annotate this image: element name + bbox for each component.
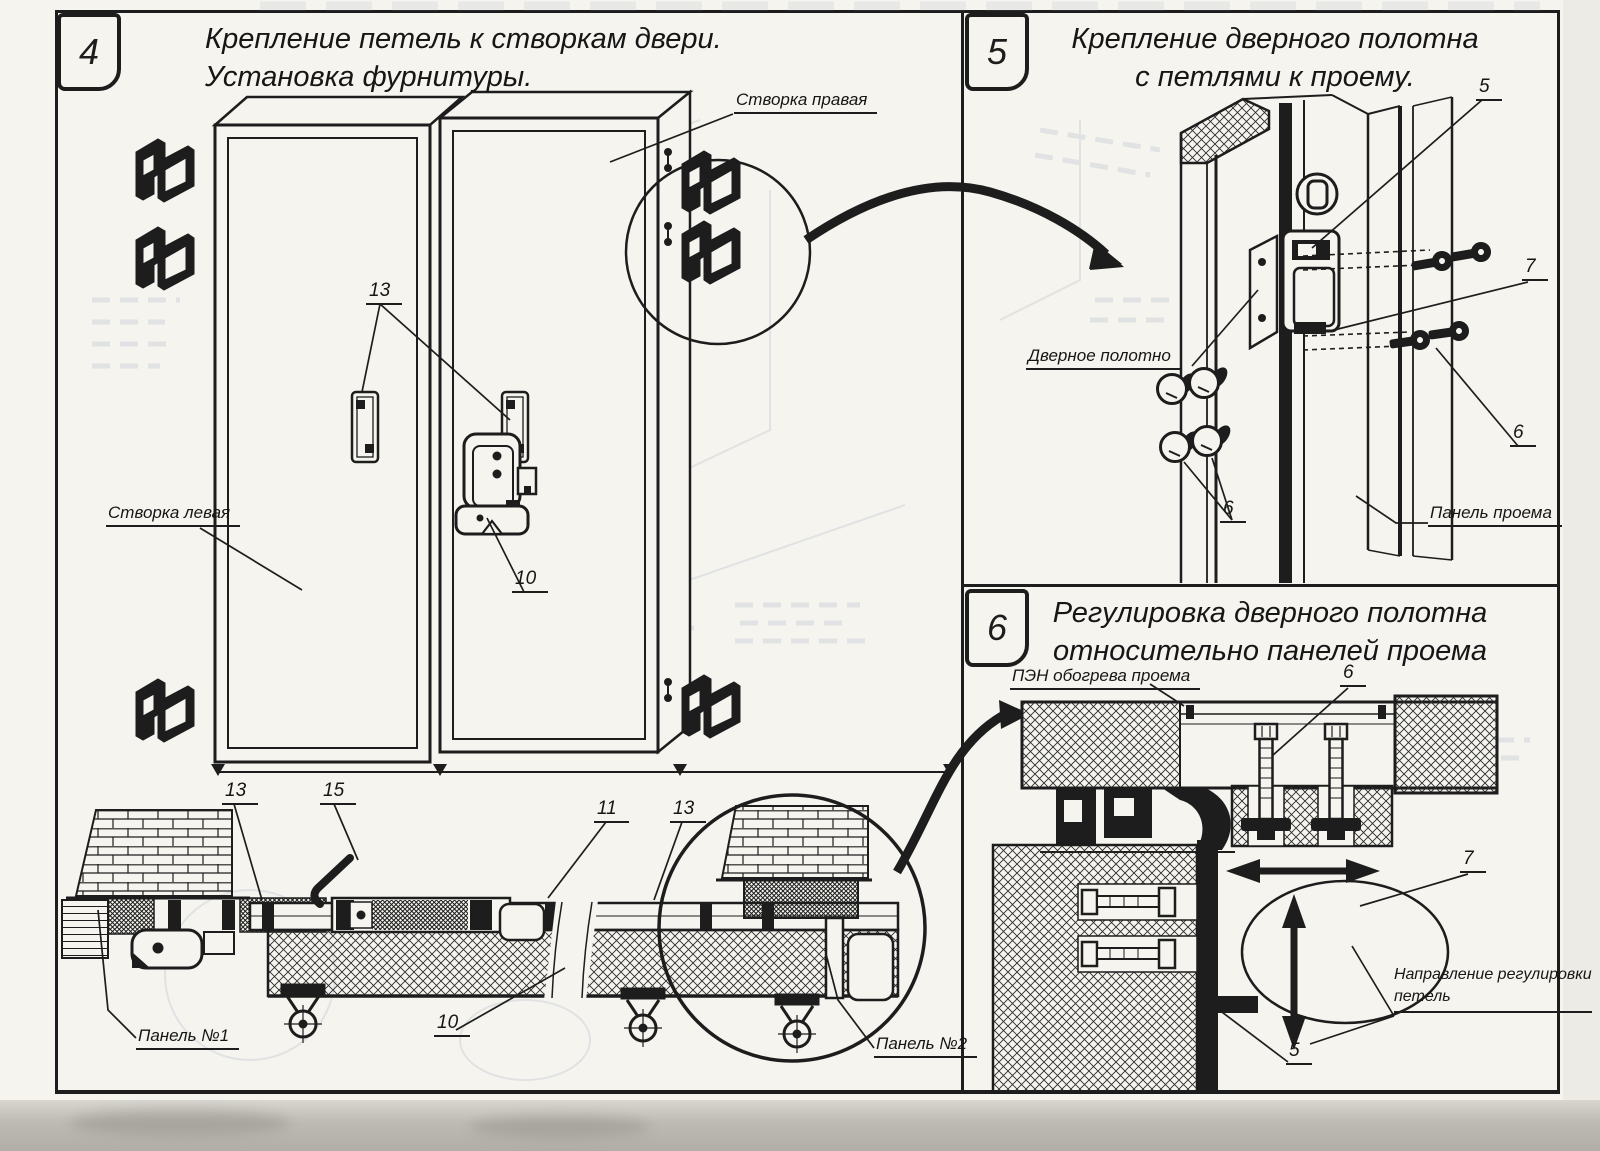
callout-13-bottom-left: 13 xyxy=(222,780,258,805)
door-leaf-left xyxy=(215,97,462,762)
callout-11: 11 xyxy=(594,798,629,823)
label-leaf-right: Створка правая xyxy=(734,90,877,114)
panel6-title-line1: Регулировка дверного полотна xyxy=(1035,594,1505,632)
hinge-detail xyxy=(1250,231,1339,348)
panel4-title: Крепление петель к створкам двери. Устан… xyxy=(205,20,722,96)
callout-7-mid: 7 xyxy=(1460,848,1486,873)
door-panel-section xyxy=(993,840,1258,1092)
panel4-title-line1: Крепление петель к створкам двери. xyxy=(205,20,722,58)
callout-6-left: 6 xyxy=(1220,498,1246,523)
floor-cross-section xyxy=(62,700,1030,1061)
label-adjust-direction-line2: петель xyxy=(1394,986,1592,1008)
panel4-title-line2: Установка фурнитуры. xyxy=(205,58,722,96)
panel6-drawing xyxy=(993,684,1497,1092)
label-adjust-direction: Направление регулировки петель xyxy=(1394,964,1592,1013)
panel4-drawing xyxy=(62,92,1124,1061)
callout-13-plates: 13 xyxy=(366,280,402,305)
callout-10-bottom: 10 xyxy=(434,1012,470,1037)
callout-6-right: 6 xyxy=(1510,422,1536,447)
opening-jamb xyxy=(1368,97,1452,560)
label-panel-no2: Панель №2 xyxy=(874,1034,977,1058)
callout-6-top: 6 xyxy=(1340,662,1366,687)
zoom-arrow-to-panel5 xyxy=(806,187,1124,270)
label-opening-panel: Панель проема xyxy=(1428,503,1562,527)
adjustment-bracket xyxy=(1232,786,1392,846)
scanned-assembly-drawing: { "panels": { "panel4": { "number": "4",… xyxy=(0,0,1600,1151)
door-leaf-section xyxy=(1181,95,1368,583)
zoom-arrow-to-panel6 xyxy=(897,716,1002,872)
panel5-leaders xyxy=(1184,100,1528,523)
dimension-line xyxy=(211,764,957,776)
label-panel-no1: Панель №1 xyxy=(136,1026,239,1050)
callout-13-bottom-right: 13 xyxy=(670,798,706,823)
panel5-number: 5 xyxy=(987,31,1007,73)
callout-7-right: 7 xyxy=(1522,256,1548,281)
screws xyxy=(1389,241,1492,354)
panel6-title-line2: относительно панелей проема xyxy=(1035,632,1505,670)
panel5-title: Крепление дверного полотна с петлями к п… xyxy=(1040,20,1510,96)
callout-5-top: 5 xyxy=(1476,76,1502,101)
panel6-number-box: 6 xyxy=(965,589,1029,667)
panel6-number: 6 xyxy=(987,607,1007,649)
panel4-number: 4 xyxy=(79,31,99,73)
callout-5-bottom: 5 xyxy=(1286,1040,1312,1065)
scan-blotch-1 xyxy=(70,1110,290,1136)
callout-15: 15 xyxy=(320,780,356,805)
label-pen-heater: ПЭН обогрева проема xyxy=(1010,666,1200,690)
hinge-plate-left xyxy=(352,392,378,462)
panel5-number-box: 5 xyxy=(965,13,1029,91)
scan-blotch-2 xyxy=(470,1116,650,1138)
callout-10-latch: 10 xyxy=(512,568,548,593)
label-door-leaf: Дверное полотно xyxy=(1026,346,1181,370)
label-adjust-direction-line1: Направление регулировки xyxy=(1394,964,1592,986)
panel4-number-box: 4 xyxy=(57,13,121,91)
panel5-title-line1: Крепление дверного полотна xyxy=(1040,20,1510,58)
door-leaf-right xyxy=(440,92,690,752)
washers xyxy=(1158,365,1234,461)
panel6-title: Регулировка дверного полотна относительн… xyxy=(1035,594,1505,670)
panel5-title-line2: с петлями к проему. xyxy=(1040,58,1510,96)
label-leaf-left: Створка левая xyxy=(106,503,240,527)
